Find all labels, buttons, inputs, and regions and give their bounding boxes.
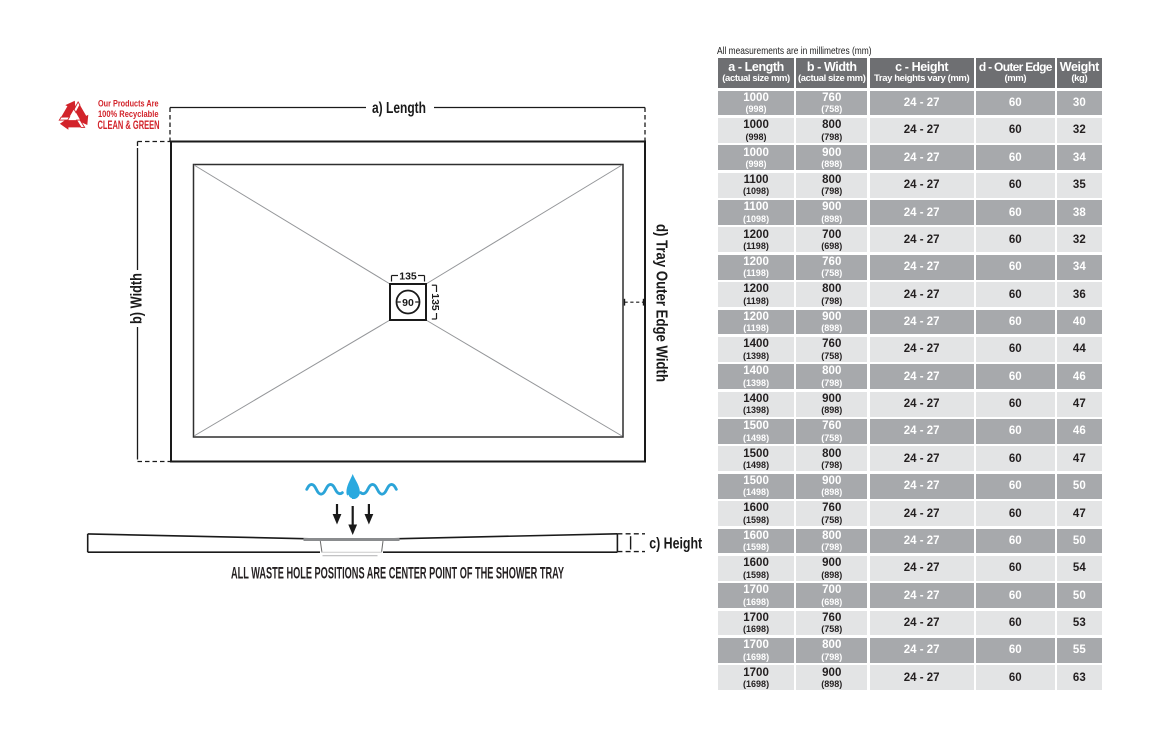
svg-text:Our Products Are: Our Products Are xyxy=(98,98,159,108)
svg-text:ALL WASTE HOLE POSITIONS ARE C: ALL WASTE HOLE POSITIONS ARE CENTER POIN… xyxy=(231,564,564,583)
svg-text:b) Width: b) Width xyxy=(129,273,146,324)
svg-text:a) Length: a) Length xyxy=(372,100,426,117)
svg-text:d) Tray Outer Edge Width: d) Tray Outer Edge Width xyxy=(653,224,670,382)
svg-text:135: 135 xyxy=(399,271,417,283)
svg-text:c) Height: c) Height xyxy=(649,536,703,553)
svg-text:90: 90 xyxy=(402,297,414,309)
svg-text:135: 135 xyxy=(429,293,441,311)
svg-text:All measurements are in millim: All measurements are in millimetres (mm) xyxy=(717,45,872,57)
svg-text:CLEAN & GREEN: CLEAN & GREEN xyxy=(98,118,160,132)
